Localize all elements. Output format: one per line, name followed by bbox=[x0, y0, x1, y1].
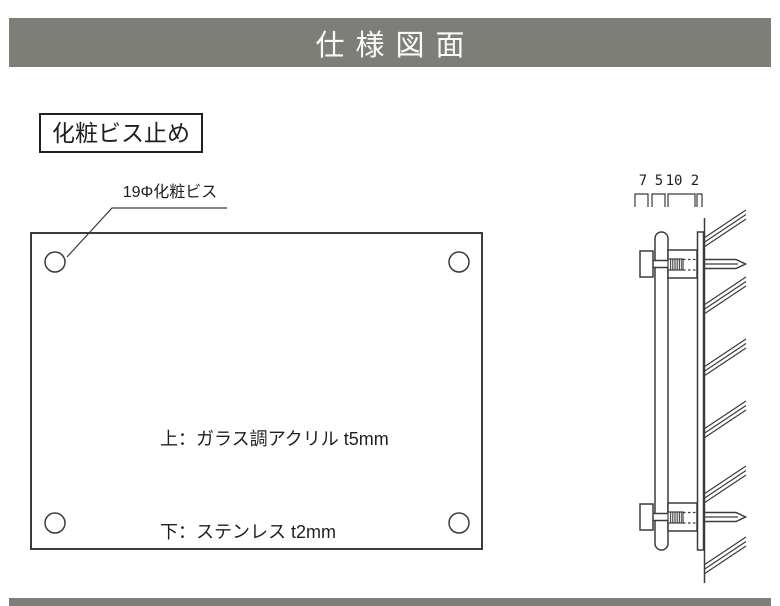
screw-hole-top-right bbox=[449, 252, 469, 272]
dimension-comb bbox=[635, 194, 702, 207]
drawing-canvas bbox=[0, 0, 780, 606]
footer-bar bbox=[9, 598, 771, 606]
screw-hole-top-left bbox=[45, 252, 65, 272]
plate-front-view bbox=[31, 233, 482, 549]
screw-hole-bottom-right bbox=[449, 513, 469, 533]
stainless-plate-side bbox=[698, 232, 704, 550]
acrylic-panel-side bbox=[655, 232, 668, 550]
screw-hole-bottom-left bbox=[45, 513, 65, 533]
spec-drawing-page: 仕様図面 化粧ビス止め 19Φ化粧ビス 上：ガラス調アクリル t5mm 下：ステ… bbox=[0, 0, 780, 606]
